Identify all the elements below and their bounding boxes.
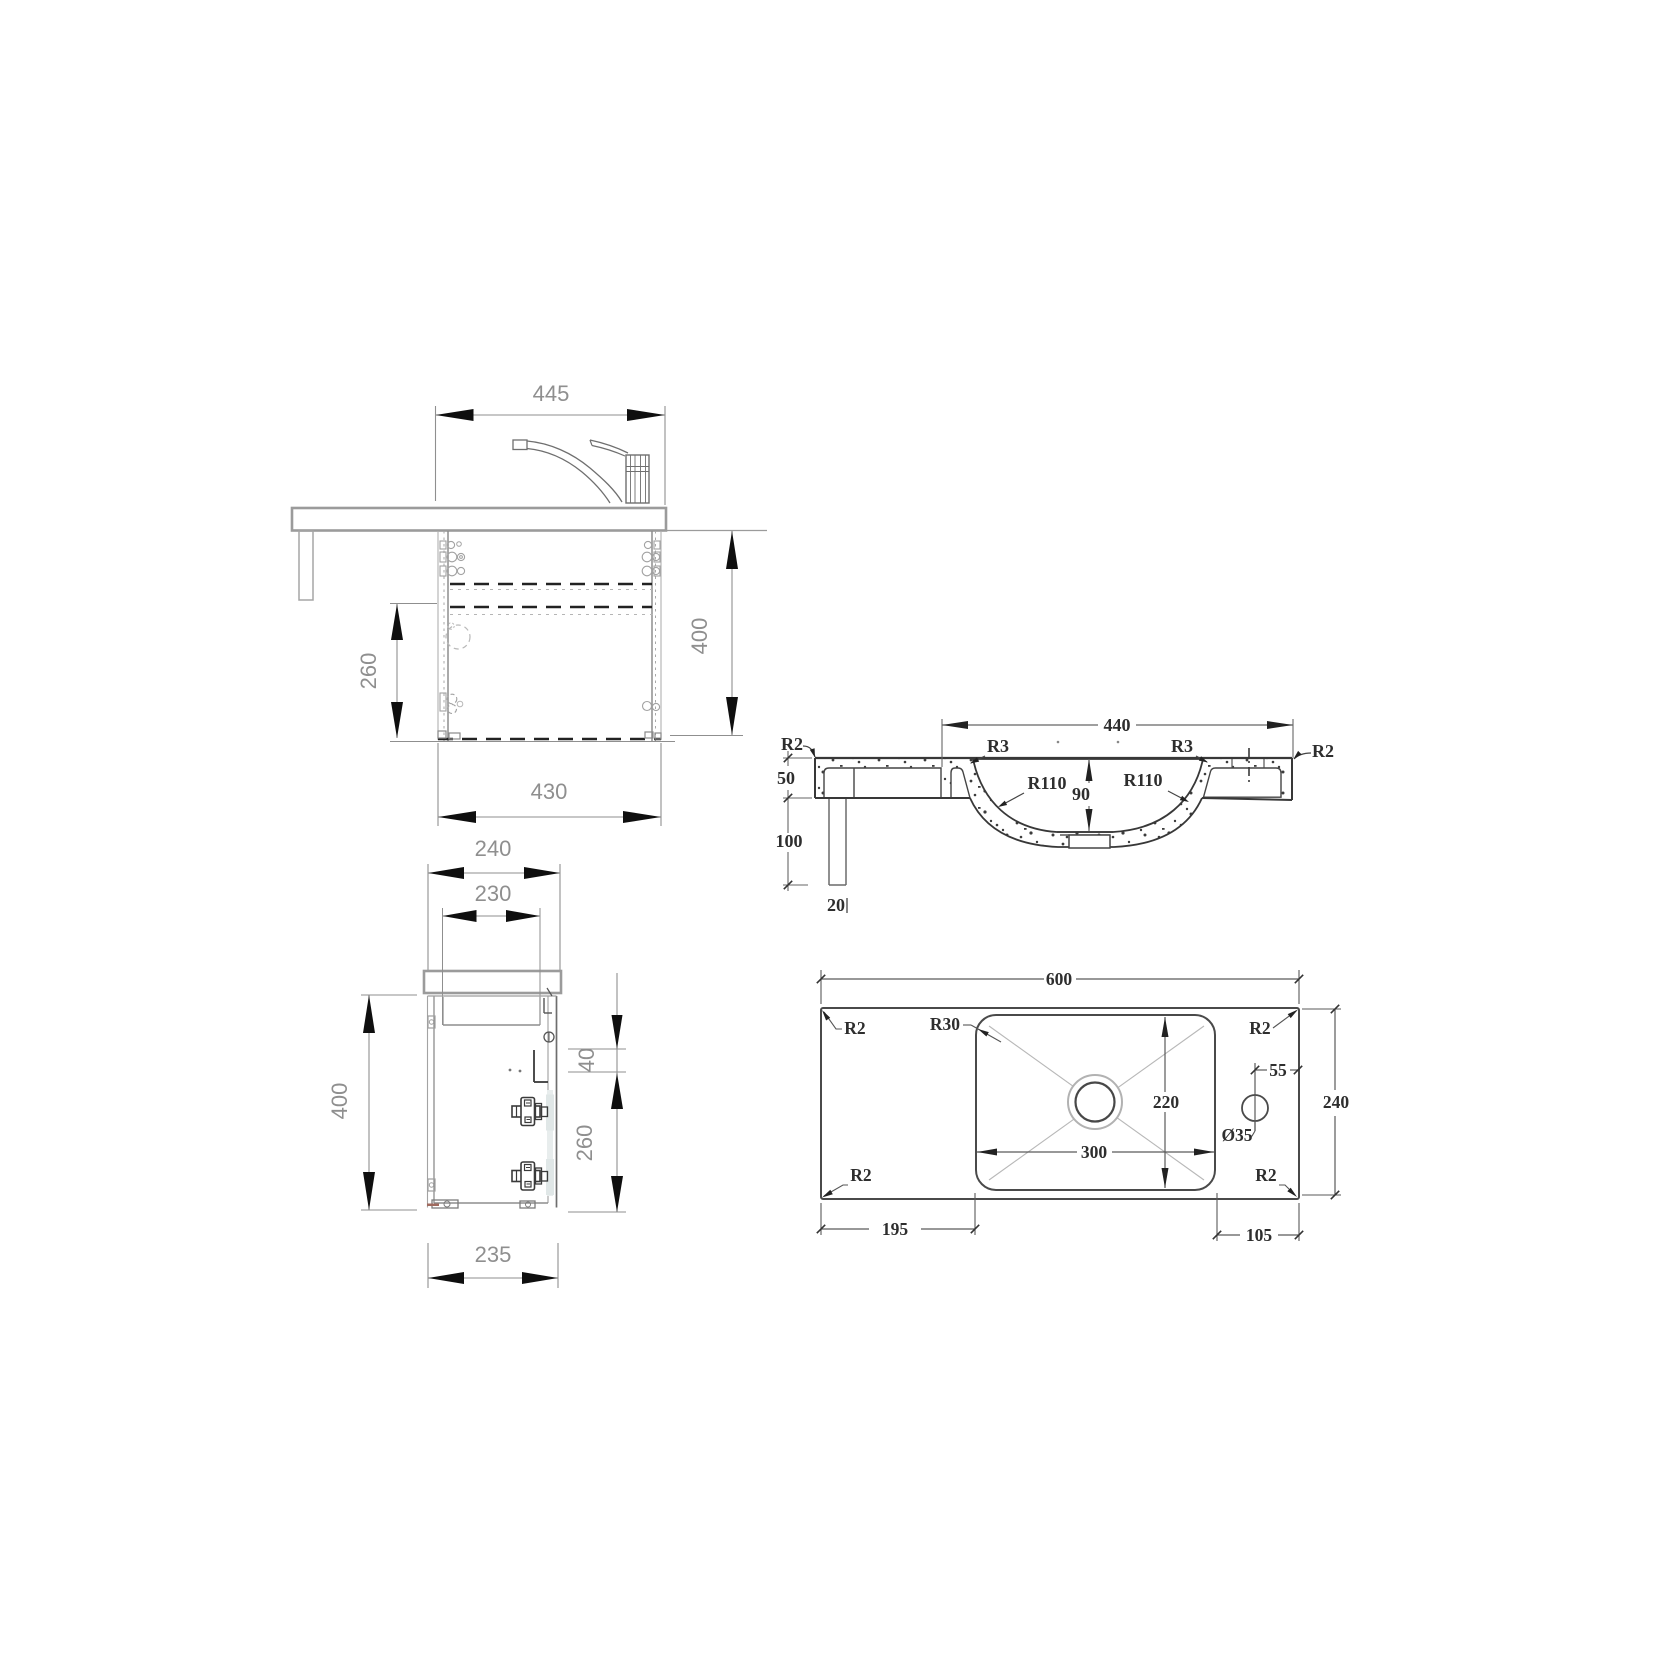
svg-text:260: 260 bbox=[572, 1125, 597, 1162]
svg-text:600: 600 bbox=[1046, 969, 1073, 989]
svg-text:R30: R30 bbox=[930, 1014, 960, 1034]
svg-text:100: 100 bbox=[776, 831, 803, 851]
svg-text:R2: R2 bbox=[1255, 1165, 1276, 1185]
svg-text:40: 40 bbox=[574, 1048, 599, 1072]
svg-text:240: 240 bbox=[475, 836, 512, 861]
svg-text:R3: R3 bbox=[1171, 736, 1193, 756]
svg-text:R110: R110 bbox=[1027, 773, 1066, 793]
svg-text:55: 55 bbox=[1269, 1060, 1287, 1080]
svg-text:R2: R2 bbox=[781, 734, 803, 754]
svg-text:R2: R2 bbox=[1249, 1018, 1270, 1038]
svg-text:445: 445 bbox=[533, 381, 570, 406]
svg-text:195: 195 bbox=[882, 1219, 909, 1239]
svg-text:230: 230 bbox=[475, 881, 512, 906]
svg-text:220: 220 bbox=[1153, 1092, 1180, 1112]
svg-text:R110: R110 bbox=[1123, 770, 1162, 790]
svg-text:440: 440 bbox=[1104, 715, 1131, 735]
svg-text:235: 235 bbox=[475, 1242, 512, 1267]
svg-text:300: 300 bbox=[1081, 1142, 1108, 1162]
svg-text:R2: R2 bbox=[844, 1018, 865, 1038]
svg-text:20: 20 bbox=[827, 895, 845, 915]
svg-text:430: 430 bbox=[531, 779, 568, 804]
svg-text:R3: R3 bbox=[987, 736, 1009, 756]
svg-text:400: 400 bbox=[687, 618, 712, 655]
svg-text:260: 260 bbox=[356, 653, 381, 690]
svg-text:R2: R2 bbox=[1312, 741, 1334, 761]
svg-text:50: 50 bbox=[777, 768, 795, 788]
svg-text:Ø35: Ø35 bbox=[1221, 1125, 1252, 1145]
svg-text:90: 90 bbox=[1072, 784, 1090, 804]
svg-text:105: 105 bbox=[1246, 1225, 1273, 1245]
svg-text:400: 400 bbox=[327, 1083, 352, 1120]
svg-text:R2: R2 bbox=[850, 1165, 871, 1185]
svg-text:240: 240 bbox=[1323, 1092, 1350, 1112]
